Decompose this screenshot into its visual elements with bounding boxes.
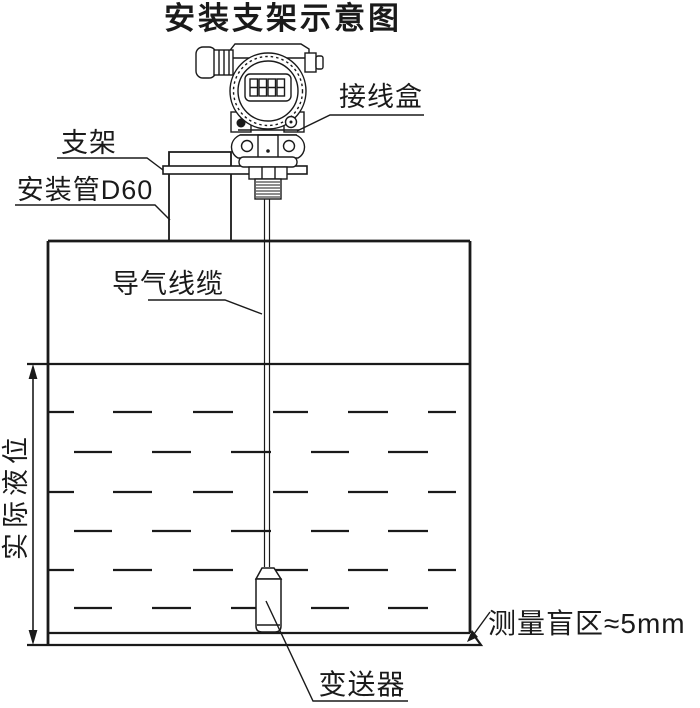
flange-disc (239, 157, 297, 167)
liquid-dashes (48, 412, 456, 608)
transmitter-head (196, 44, 323, 199)
leader-air-cable (148, 300, 262, 314)
label-junction-box: 接线盒 (339, 82, 423, 112)
leader-bracket (57, 158, 163, 170)
yoke-right-hole (284, 141, 295, 152)
right-bolt-dot (290, 121, 293, 124)
dimension-arrow-down-icon (29, 630, 38, 645)
right-stub (305, 53, 316, 72)
label-blind-zone: 测量盲区≈5mm (488, 608, 686, 639)
dimension-arrow-up-icon (29, 364, 38, 379)
label-mounting-pipe: 安装管D60 (17, 175, 154, 205)
tank (27, 241, 481, 645)
yoke-left-hole (242, 141, 253, 152)
installation-diagram: 安装支架示意图 接线盒 支架 安装管D60 导气线缆 实际液位 测量盲区≈5mm… (0, 0, 700, 708)
hex-nut (249, 167, 287, 179)
yoke-center-dot (266, 149, 270, 153)
leader-mounting-pipe (15, 205, 170, 220)
right-stub-cap (316, 56, 323, 69)
leader-junction-box (297, 115, 424, 131)
cable-gland-icon (196, 47, 216, 78)
diagram-title: 安装支架示意图 (164, 1, 402, 36)
probe (256, 568, 281, 632)
tank-base-line (27, 634, 481, 645)
left-bolt-icon (237, 119, 246, 128)
label-air-cable: 导气线缆 (112, 269, 224, 299)
vented-cable (265, 199, 270, 567)
diagram-svg: 安装支架示意图 接线盒 支架 安装管D60 导气线缆 实际液位 测量盲区≈5mm… (0, 0, 700, 708)
label-actual-level: 实际液位 (1, 432, 31, 560)
label-transmitter: 变送器 (318, 669, 405, 700)
label-bracket: 支架 (61, 128, 117, 158)
